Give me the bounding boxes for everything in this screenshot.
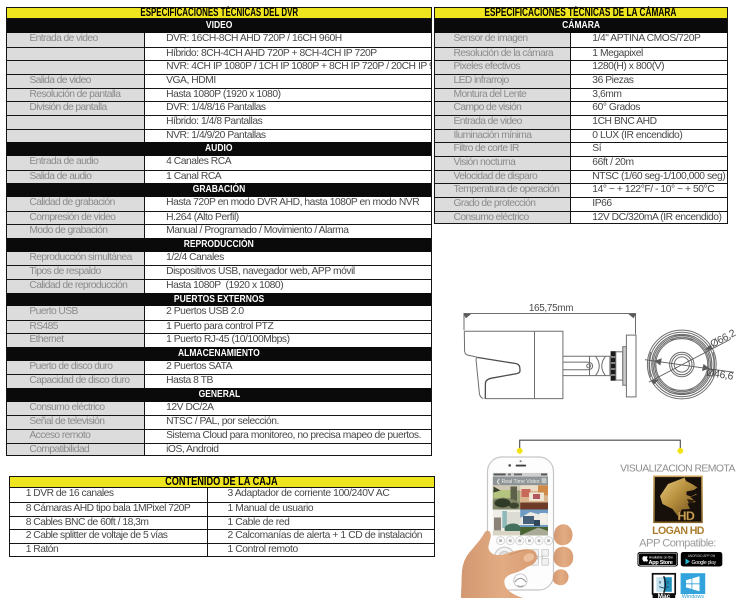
svg-text:HD: HD xyxy=(678,509,695,523)
svg-text:Available on the: Available on the xyxy=(649,556,673,560)
svg-text:Real Time Video: Real Time Video xyxy=(502,479,540,485)
svg-text:Windows: Windows xyxy=(682,594,705,598)
svg-text:❮: ❮ xyxy=(496,478,501,485)
svg-text:Mac: Mac xyxy=(658,593,671,598)
svg-text:ANDROID APP ON: ANDROID APP ON xyxy=(688,554,716,558)
svg-text:165,75mm: 165,75mm xyxy=(529,303,573,314)
svg-text:APP Compatible:: APP Compatible: xyxy=(639,538,716,550)
svg-text:VISUALIZACION REMOTA: VISUALIZACION REMOTA xyxy=(620,464,735,475)
svg-text:Google play: Google play xyxy=(692,560,717,566)
svg-text:App Store: App Store xyxy=(649,560,673,566)
svg-text:Ø66,2: Ø66,2 xyxy=(709,328,738,351)
svg-text:LOGAN HD: LOGAN HD xyxy=(652,525,705,537)
svg-text:P T: P T xyxy=(537,556,544,561)
